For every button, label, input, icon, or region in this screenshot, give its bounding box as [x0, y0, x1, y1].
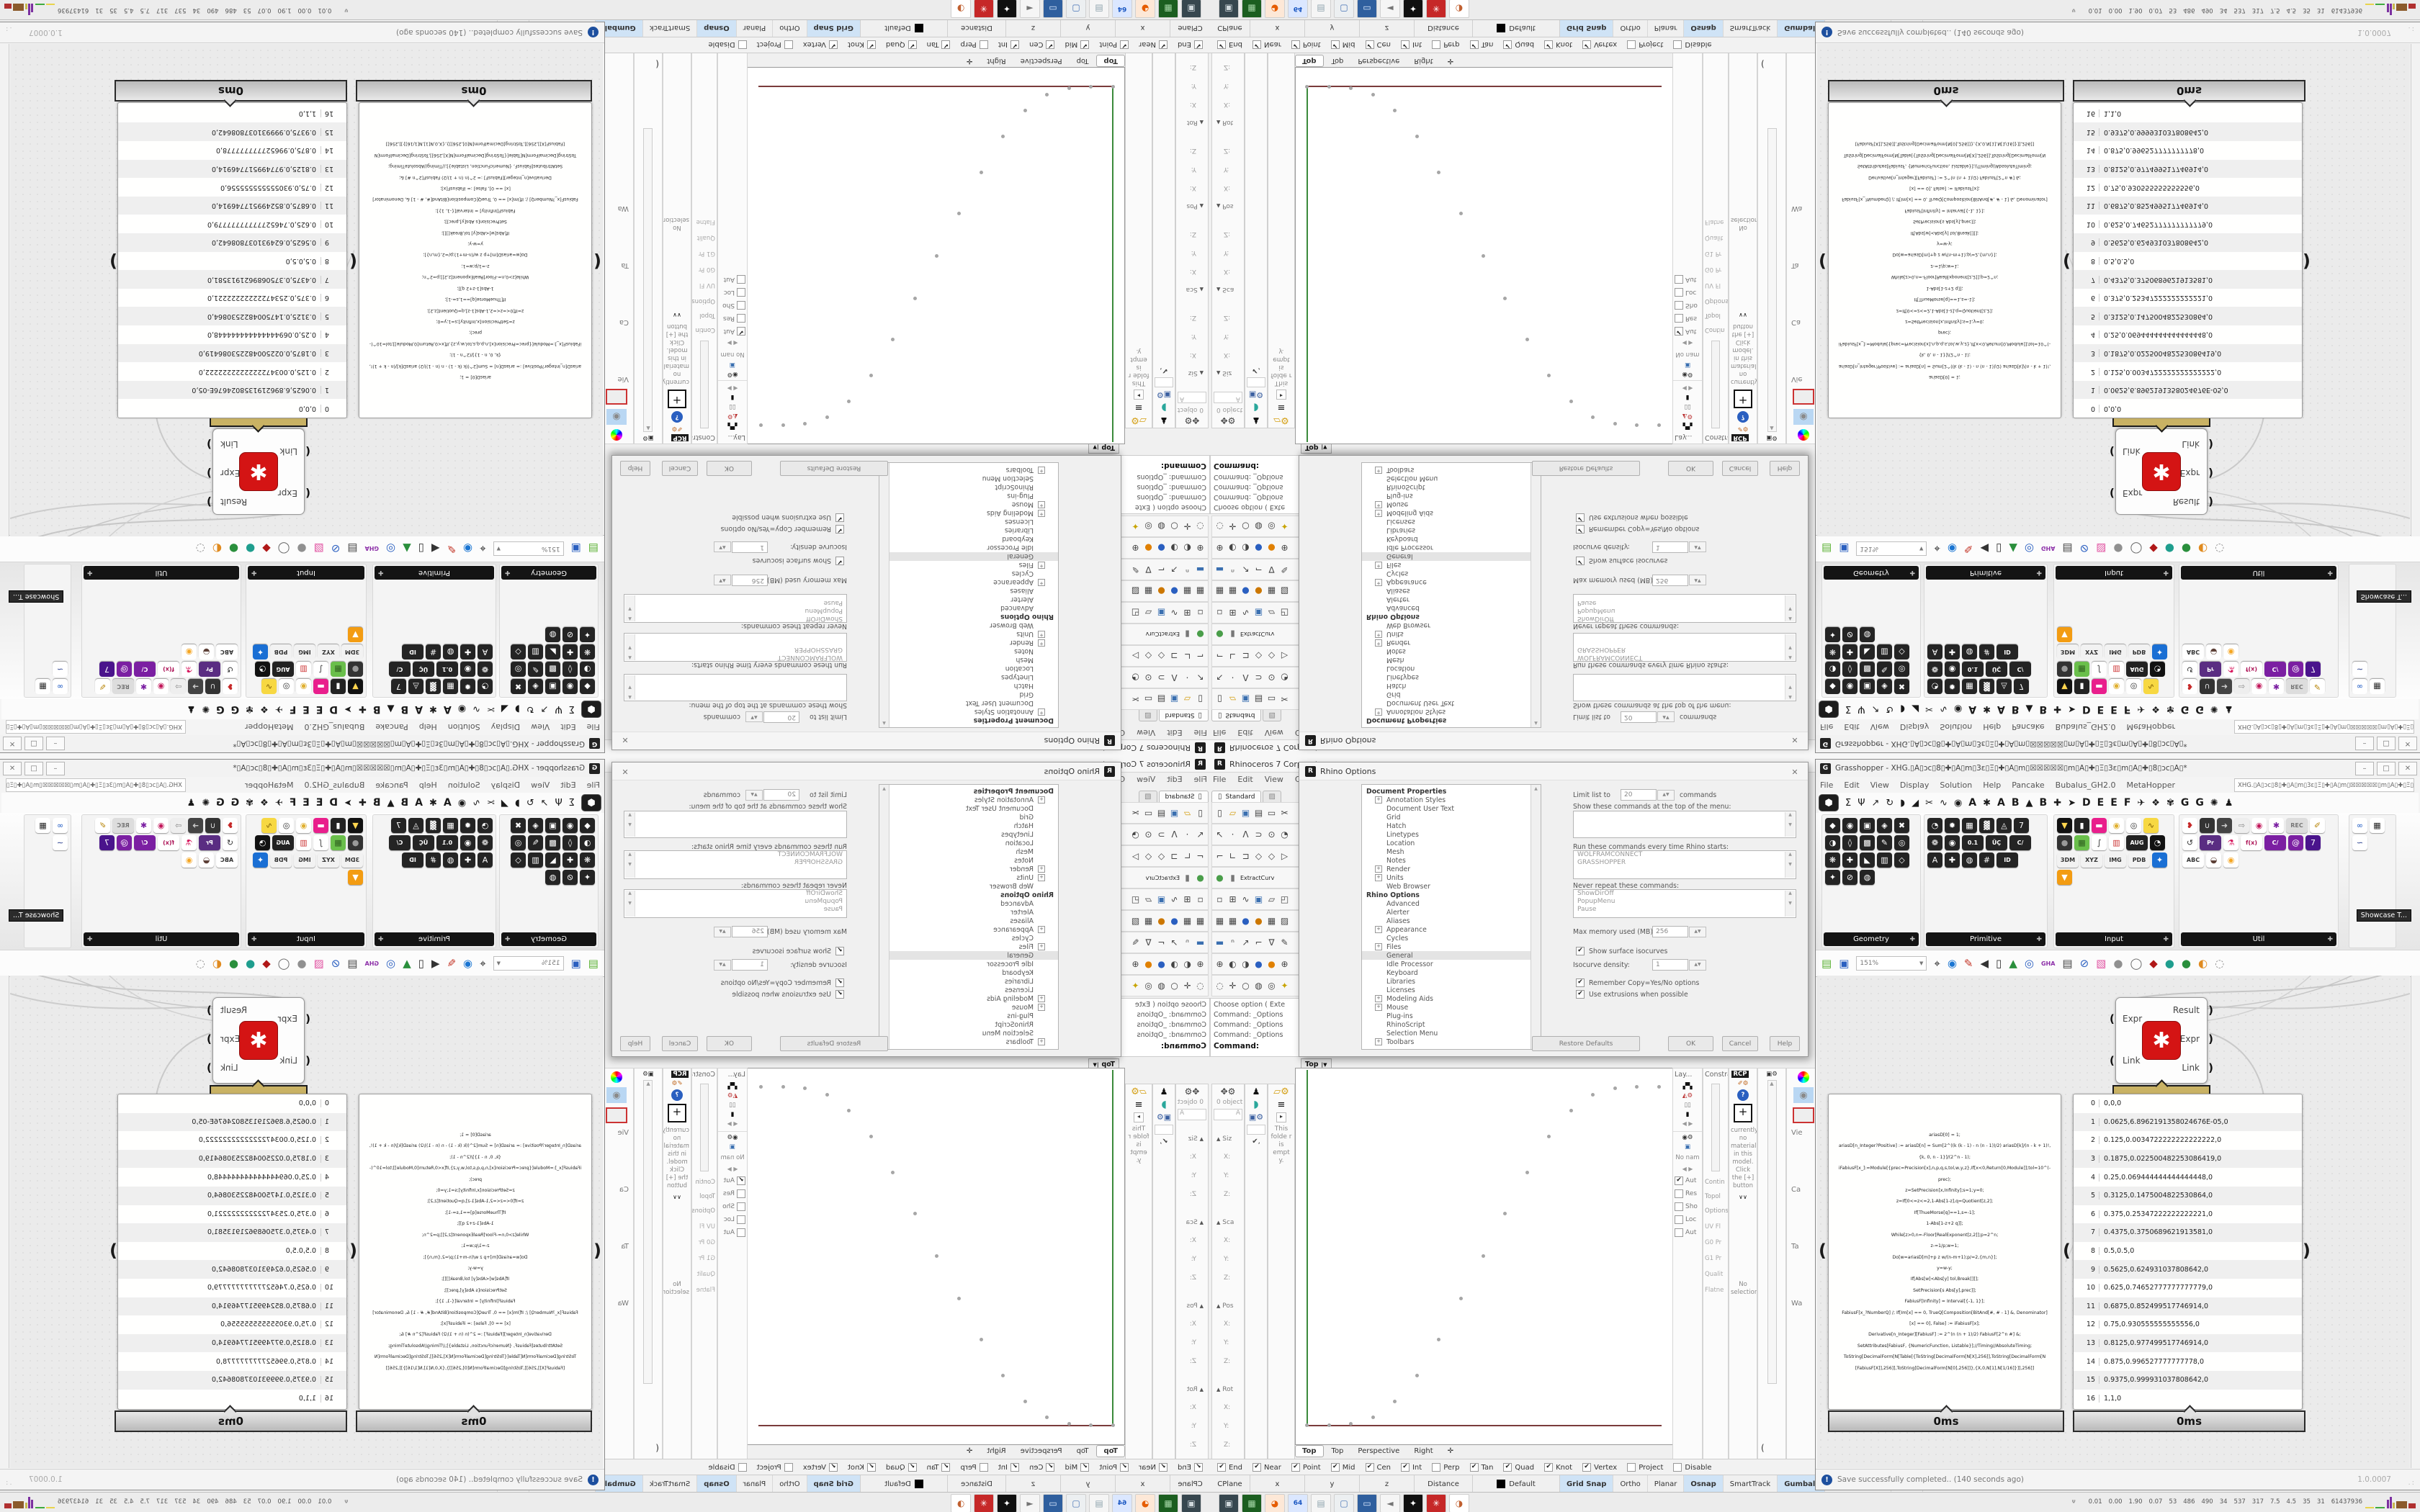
expand-icon[interactable]: ✚ — [2036, 570, 2042, 577]
osnap-checkbox[interactable] — [784, 40, 793, 49]
component-icon[interactable]: C/ — [2009, 662, 2031, 677]
tool-icon[interactable]: ✂ — [1130, 808, 1141, 818]
gh-category-tab[interactable]: F — [290, 797, 297, 809]
hamburger-icon[interactable]: ≡ — [1268, 1099, 1294, 1110]
viewport-tab-perspective[interactable]: Perspective — [1014, 1446, 1069, 1457]
osnap-end[interactable]: ✔End — [1178, 40, 1203, 49]
osnap-point[interactable]: ✔Point — [1291, 1463, 1321, 1472]
gh-menu-item-metahopper[interactable]: MetaHopper — [2126, 780, 2175, 790]
expand-icon[interactable]: ✚ — [505, 936, 511, 943]
gh-category-tab[interactable]: ✱ — [429, 798, 437, 809]
component-icon[interactable]: 0.1 — [436, 835, 458, 850]
chevrons-icon[interactable]: ∨∨ — [663, 1194, 691, 1200]
osnap-checkbox[interactable]: ✔ — [1080, 40, 1089, 49]
tool-icon[interactable]: ∇ — [1266, 937, 1277, 948]
osnap-checkbox[interactable]: ✔ — [942, 40, 951, 49]
rdock-check-aut[interactable]: ✔Aut — [720, 1176, 745, 1185]
data-panel[interactable]: 00,0,010.0625,6.8962191358024676E-05,020… — [2073, 102, 2303, 418]
tree-item-aliases[interactable]: Aliases — [879, 917, 1058, 925]
gh-menu-item-view[interactable]: View — [1870, 723, 1889, 732]
component-icon[interactable]: ◬ — [408, 679, 423, 694]
canvas-toolbar-icon[interactable]: ● — [2165, 542, 2174, 555]
statusbar-cell[interactable]: CPlane — [1210, 19, 1250, 37]
component-icon[interactable]: ❋ — [580, 644, 595, 660]
new-file-icon[interactable]: ▤ — [1821, 957, 1832, 970]
tab-stub[interactable]: ▨ — [1263, 710, 1281, 721]
component-icon[interactable]: ▣ — [545, 679, 560, 694]
tree-item-location[interactable]: Location — [879, 665, 1058, 673]
taskbar-icon[interactable]: ▭ — [1357, 1494, 1377, 1512]
osnap-perp[interactable]: Perp — [961, 40, 988, 49]
osnap-checkbox[interactable]: ✔ — [1366, 1463, 1374, 1472]
taskbar-icon[interactable]: ▦ — [1242, 0, 1262, 18]
taskbar-icon[interactable]: ▦ — [1158, 1494, 1178, 1512]
a-field[interactable]: A — [1178, 392, 1206, 403]
chevrons-icon[interactable]: ∨∨ — [1729, 312, 1757, 318]
tree-item-plug-ins[interactable]: Plug-ins — [879, 1012, 1058, 1020]
component-icon[interactable]: ◣ — [1860, 852, 1875, 868]
tool-icon[interactable]: ExtractCurv — [1240, 631, 1274, 638]
component-icon[interactable]: ✖ — [1894, 679, 1909, 694]
component-icon[interactable]: C/ — [2009, 835, 2031, 850]
component-icon[interactable]: ↺ — [223, 662, 238, 677]
spinner[interactable]: ▲▼ — [1689, 575, 1706, 585]
component-icon[interactable]: ◍ — [443, 852, 458, 868]
expand-icon[interactable]: ✚ — [505, 570, 511, 577]
component-icon[interactable]: ▼ — [2057, 818, 2072, 833]
component-icon[interactable]: Pr — [2200, 835, 2221, 850]
gh-category-tab[interactable]: ✱ — [429, 704, 437, 715]
code-panel[interactable]: ariasD[0] = 1;ariasD[n_Integer?Positive]… — [1828, 1094, 2061, 1410]
osnap-cen[interactable]: ✔Cen — [1029, 40, 1054, 49]
tool-icon[interactable]: ▬ — [1195, 564, 1206, 575]
checker-icon[interactable]: ▞▚ — [1673, 422, 1702, 429]
camera-gear-icon[interactable]: ◉⚙ — [718, 371, 747, 378]
tool-icon[interactable]: ● — [1253, 916, 1264, 926]
tab-standard[interactable]: ▯Standard — [1159, 710, 1209, 721]
component-icon[interactable]: 3DM — [2057, 644, 2079, 660]
canvas-toolbar-icon[interactable]: ◌ — [2215, 957, 2224, 970]
tool-icon[interactable]: ⌐ — [1156, 564, 1167, 575]
gh-category-tab[interactable]: ➤ — [344, 798, 352, 809]
section-header[interactable]: ▲ Sca — [1212, 1214, 1244, 1231]
canvas-toolbar-icon[interactable]: ◆ — [262, 957, 271, 970]
taskbar-icon[interactable]: ◕ — [1265, 0, 1285, 18]
canvas-toolbar-icon[interactable]: ◯ — [2130, 957, 2142, 970]
component-icon[interactable]: ↺ — [2182, 662, 2197, 677]
checkbox[interactable] — [1675, 1215, 1683, 1224]
tree-item-libraries[interactable]: Libraries — [879, 977, 1058, 986]
tool-icon[interactable]: ⊕ — [1214, 959, 1225, 969]
component-icon[interactable]: ▼ — [2057, 679, 2072, 694]
remember-checkbox[interactable]: ✔Remember Copy=Yes/No options — [1576, 978, 1699, 987]
canvas-toolbar-icon[interactable]: ◀ — [1981, 957, 1989, 970]
tool-icon[interactable]: ◍ — [1253, 521, 1264, 531]
statusbar-cell[interactable]: x — [1250, 19, 1305, 37]
tool-icon[interactable]: ▮ — [1182, 873, 1193, 883]
expand-arrow[interactable]: ▸ — [1134, 390, 1144, 400]
checkbox[interactable]: ✔ — [1675, 1176, 1683, 1185]
component-icon[interactable]: ✚ — [1945, 852, 1960, 868]
scrollbar[interactable]: ▲ — [644, 1080, 653, 1384]
viewport-tab-top[interactable]: Top — [1325, 56, 1350, 67]
gh-category-tab[interactable]: ✾ — [246, 798, 254, 809]
tree-item-plug-ins[interactable]: Plug-ins — [879, 492, 1058, 500]
statusbar-cell[interactable]: x — [1115, 19, 1170, 37]
taskbar-icon[interactable]: ✦ — [1403, 0, 1423, 18]
tree-expand-icon[interactable]: + — [1375, 1038, 1382, 1045]
tool-icon[interactable]: ● — [1253, 586, 1264, 596]
tree-item-idle-processor[interactable]: Idle Processor — [879, 960, 1058, 968]
menu-item-file[interactable]: File — [1194, 775, 1207, 784]
canvas-toolbar-icon[interactable]: ▲ — [403, 957, 411, 970]
component-icon[interactable]: @ — [2288, 662, 2303, 677]
tree-expand-icon[interactable]: + — [1375, 562, 1382, 569]
tool-icon[interactable]: ▣ — [1253, 608, 1264, 618]
canvas-toolbar-icon[interactable]: ● — [297, 542, 307, 555]
gh-category-tab[interactable]: ➤ — [344, 704, 352, 715]
board-icon[interactable]: ▦ — [35, 818, 50, 833]
menu-item-edit[interactable]: Edit — [1237, 775, 1252, 784]
tree-item-cycles[interactable]: Cycles — [1362, 934, 1541, 942]
goggles2-icon[interactable]: ∽ — [53, 835, 68, 850]
statusbar-cell[interactable]: CPlane — [1170, 19, 1210, 37]
minimize-button[interactable]: – — [2355, 762, 2374, 775]
gh-category-tab[interactable]: B — [373, 703, 381, 715]
output-port-expr[interactable]: Expr — [220, 1034, 240, 1044]
section-header[interactable]: ▲ Siz — [1212, 364, 1244, 382]
extrusions-checkbox[interactable]: ✔Use extrusions when possible — [732, 990, 844, 999]
tool-icon[interactable]: ⌐ — [1253, 937, 1264, 948]
expand-icon[interactable]: ✚ — [251, 570, 257, 577]
section-header[interactable]: ▲ Sca — [1176, 281, 1208, 298]
rcp-chip[interactable]: RCP — [1731, 434, 1749, 441]
tree-item-units[interactable]: +Units — [879, 873, 1058, 882]
tree-expand-icon[interactable]: + — [1375, 796, 1382, 804]
gh-category-tab[interactable]: E — [302, 703, 310, 715]
component-icon[interactable]: IMG — [2105, 852, 2126, 868]
osnap-checkbox[interactable] — [1627, 1463, 1636, 1472]
component-icon[interactable]: ✦ — [2152, 644, 2167, 660]
viewport-tab-right[interactable]: Right — [1407, 1446, 1439, 1457]
tool-icon[interactable]: ▣ — [1253, 894, 1264, 904]
component-icon[interactable]: ▩ — [1860, 835, 1875, 850]
component-icon[interactable]: ◬ — [408, 818, 423, 833]
palette-banner-util[interactable]: Util✚ — [2181, 932, 2336, 946]
component-icon[interactable]: ▣ — [545, 818, 560, 833]
gh-category-tab[interactable]: Ψ — [1857, 798, 1865, 809]
osnap-checkbox[interactable]: ✔ — [1010, 40, 1019, 49]
tab-stub[interactable]: ▨ — [1139, 791, 1157, 802]
port-grip[interactable]: ( — [2110, 1012, 2115, 1025]
tree-item-annotation-styles[interactable]: +Annotation Styles — [879, 796, 1058, 804]
component-icon[interactable]: ▣ — [1860, 679, 1875, 694]
component-icon[interactable]: ◔ — [2150, 662, 2165, 677]
graduation-cap-icon[interactable]: ♟ — [1245, 1086, 1267, 1097]
statusbar-cell[interactable]: z — [1360, 1475, 1415, 1493]
gh-category-tab[interactable]: ▲ — [387, 798, 394, 809]
component-icon[interactable]: ● — [348, 835, 363, 850]
component-icon[interactable]: ⚗ — [181, 662, 197, 677]
component-icon[interactable]: ✖ — [511, 818, 526, 833]
component-icon[interactable]: ● — [2057, 662, 2072, 677]
component-icon[interactable]: ∫ — [2092, 662, 2107, 677]
docs-icon[interactable]: ▯▯ — [718, 403, 747, 410]
tool-icon[interactable]: ⊙ — [1143, 672, 1154, 683]
component-icon[interactable]: ◍ — [443, 644, 458, 660]
component-icon[interactable]: ✚ — [1842, 644, 1857, 660]
tool-icon[interactable]: ◇ — [1266, 851, 1277, 861]
spray-icon[interactable]: ✐⚙ — [1729, 425, 1757, 432]
menu-item-file[interactable]: File — [1194, 729, 1207, 738]
restore-defaults-button[interactable]: Restore Defaults — [1532, 1036, 1640, 1051]
component-icon[interactable]: AUG — [2126, 835, 2148, 850]
canvas-toolbar-icon[interactable]: ◀ — [431, 957, 440, 970]
component-icon[interactable]: ▓ — [426, 679, 441, 694]
osnap-checkbox[interactable]: ✔ — [1503, 40, 1512, 49]
component-icon[interactable]: ◊ — [1842, 662, 1857, 677]
gh-category-tab[interactable]: ♟ — [2225, 704, 2233, 715]
rdock-check-sho[interactable]: Sho — [1675, 1202, 1700, 1211]
tool-icon[interactable]: ↗ — [1169, 564, 1180, 575]
layers-header[interactable]: Lay... — [718, 1068, 747, 1081]
listbox-scroll[interactable]: ▲▼ — [625, 891, 635, 917]
canvas-toolbar-icon[interactable]: ◀ — [1981, 542, 1989, 555]
component-icon[interactable]: ✐ — [2310, 679, 2325, 694]
component-icon[interactable]: ∪ — [2200, 818, 2215, 833]
output-port-expr[interactable]: Expr — [220, 468, 240, 478]
component-icon[interactable]: ◎ — [279, 818, 294, 833]
port-bracket[interactable]: ( — [349, 1241, 357, 1261]
canvas-toolbar-icon[interactable]: ⊘ — [331, 957, 341, 970]
gh-canvas[interactable]: Expr(Link( Result)Expr)Link) ✱ 5ms ( ) a… — [1817, 44, 2410, 536]
component-icon[interactable]: ◎ — [1894, 835, 1909, 850]
tree-expand-icon[interactable]: + — [1375, 631, 1382, 638]
statusbar-cell[interactable]: y — [1060, 1475, 1115, 1493]
component-icon[interactable]: ◒ — [2206, 644, 2221, 660]
gh-menu-item-pancake[interactable]: Pancake — [2012, 723, 2044, 732]
taskbar-icon[interactable]: ◑ — [951, 0, 971, 18]
rcp-chip[interactable]: RCP — [1731, 1071, 1749, 1078]
component-icon[interactable]: ◉ — [296, 818, 311, 833]
canvas-toolbar-icon[interactable]: ● — [2113, 542, 2123, 555]
tree-expand-icon[interactable]: + — [1038, 510, 1045, 517]
tool-icon[interactable]: ∿ — [1240, 894, 1251, 904]
gh-category-tab[interactable]: G — [2181, 703, 2190, 715]
input-port-link[interactable]: Link — [2123, 446, 2141, 456]
taskbar-icon[interactable]: ▤ — [1089, 1494, 1109, 1512]
component-icon[interactable]: ▩ — [545, 662, 560, 677]
port-bracket[interactable]: ( — [1819, 251, 1827, 271]
gh-menu-item-solution[interactable]: Solution — [1940, 780, 1972, 790]
osnap-checkbox[interactable] — [738, 40, 747, 49]
graduation-cap-icon[interactable]: ♟ — [1245, 415, 1267, 426]
component-icon[interactable]: XYZ — [2081, 644, 2102, 660]
listbox-scroll[interactable]: ▲▼ — [625, 675, 635, 700]
taskbar-icon[interactable]: ▢ — [1334, 0, 1354, 18]
tool-icon[interactable]: ✦ — [1130, 521, 1141, 531]
component-icon[interactable]: ◑ — [580, 662, 595, 677]
component-icon[interactable]: ✖ — [1894, 818, 1909, 833]
tool-icon[interactable]: ▱ — [1182, 694, 1193, 704]
gh-menu-item-file[interactable]: File — [1820, 723, 1833, 732]
tree-item-grid[interactable]: Grid — [1362, 813, 1541, 822]
spinner[interactable]: ▲▼ — [1689, 541, 1706, 552]
component-icon[interactable]: ◔ — [2150, 835, 2165, 850]
tree-item-location[interactable]: Location — [1362, 839, 1541, 847]
checkbox[interactable] — [737, 1228, 745, 1237]
tool-icon[interactable]: ◇ — [1253, 851, 1264, 861]
canvas-toolbar-icon[interactable]: GHA — [365, 546, 379, 552]
viewport-top[interactable] — [1295, 1068, 1674, 1445]
component-icon[interactable]: ID — [402, 852, 423, 868]
tool-icon[interactable]: Λ — [1169, 672, 1180, 683]
component-icon[interactable]: ▦ — [443, 679, 458, 694]
cancel-button[interactable]: Cancel — [1722, 461, 1758, 476]
component-icon[interactable]: ◍ — [1962, 644, 1977, 660]
canvas-toolbar-icon[interactable]: ◌ — [2215, 542, 2224, 555]
statusbar-toggle-osnap[interactable]: Osnap — [1684, 19, 1723, 37]
tool-icon[interactable]: ▦ — [1195, 916, 1206, 926]
osnap-quad[interactable]: ✔Quad — [1503, 1463, 1534, 1472]
component-icon[interactable]: ❋ — [1825, 644, 1840, 660]
tool-icon[interactable]: ▦ — [1182, 916, 1193, 926]
component-icon[interactable]: ◣ — [545, 644, 560, 660]
component-icon[interactable]: ⊘ — [1842, 870, 1857, 885]
tree-expand-icon[interactable]: + — [1038, 708, 1045, 716]
taskbar-icon[interactable]: ◕ — [1135, 1494, 1155, 1512]
tree-expand-icon[interactable]: + — [1375, 943, 1382, 950]
tool-icon[interactable]: ▬ — [1195, 937, 1206, 948]
component-icon[interactable]: ▥ — [528, 644, 543, 660]
canvas-toolbar-icon[interactable]: ▲ — [2009, 542, 2017, 555]
component-icon[interactable]: ✦ — [253, 852, 268, 868]
menu-item-file[interactable]: File — [1213, 775, 1226, 784]
gh-category-tab[interactable]: B — [373, 797, 381, 809]
gh-menu-item-edit[interactable]: Edit — [560, 780, 575, 790]
board-icon[interactable]: ▦ — [2370, 679, 2385, 694]
gh-category-tab[interactable]: ♟ — [187, 798, 196, 809]
osnap-checkbox[interactable]: ✔ — [1470, 40, 1479, 49]
tool-icon[interactable]: ◎ — [1266, 981, 1277, 991]
gh-category-tab[interactable]: ⬢ — [581, 701, 601, 718]
gh-category-tab[interactable]: B — [2040, 703, 2048, 715]
component-icon[interactable]: # — [1979, 644, 1994, 660]
gh-category-tab[interactable]: A — [444, 703, 452, 715]
gh-menu-item-bubalus_gh20[interactable]: Bubalus_GH2.0 — [2056, 780, 2116, 790]
component-icon[interactable]: ✚ — [460, 852, 475, 868]
tree-item-document-properties[interactable]: Document Properties — [1362, 787, 1541, 796]
tool-icon[interactable]: ▦ — [1195, 586, 1206, 596]
component-icon[interactable]: ID — [1996, 852, 2018, 868]
component-icon[interactable]: Pr — [2200, 662, 2221, 677]
gh-category-tab[interactable]: ✈ — [2137, 798, 2145, 809]
zoom-combo[interactable]: 151%▼ — [493, 956, 564, 971]
osnap-checkbox[interactable]: ✔ — [1194, 40, 1203, 49]
maximize-button[interactable]: □ — [24, 762, 43, 775]
viewport-tab-top[interactable]: Top — [1325, 1446, 1350, 1457]
tool-icon[interactable]: ○ — [1169, 521, 1180, 531]
component-icon[interactable]: ◒ — [199, 644, 214, 660]
tree-item-web-browser[interactable]: Web Browser — [1362, 621, 1541, 630]
port-grip[interactable]: ( — [2110, 487, 2115, 500]
component-icon[interactable]: ◉ — [2223, 852, 2238, 868]
tool-icon[interactable]: ⊃ — [1156, 829, 1167, 840]
gh-category-tab[interactable]: A — [415, 797, 423, 809]
gh-category-tab[interactable]: ∿ — [1940, 798, 1948, 809]
tool-icon[interactable]: ● — [1214, 873, 1225, 883]
tree-scrollbar[interactable]: ▲▼ — [1531, 463, 1541, 727]
taskbar-icon[interactable]: ▦ — [1158, 0, 1178, 18]
tool-icon[interactable]: ▱ — [1143, 894, 1154, 904]
viewport-tab-perspective[interactable]: Perspective — [1014, 56, 1069, 67]
tool-icon[interactable]: ↖ — [1214, 829, 1225, 840]
component-icon[interactable]: ◉ — [1945, 662, 1960, 677]
add-material-button[interactable]: + — [668, 390, 686, 408]
gh-category-tab[interactable]: ↻ — [526, 704, 534, 715]
input-port-expr[interactable]: Expr — [278, 1014, 297, 1024]
new-file-icon[interactable]: ▤ — [588, 542, 599, 555]
palette-banner-primitive[interactable]: Primitive✚ — [1926, 932, 2045, 946]
tree-item-rhino-options[interactable]: Rhino Options — [1362, 891, 1541, 899]
tool-icon[interactable]: ▨ — [1130, 586, 1141, 596]
expand-icon[interactable]: ✚ — [1909, 936, 1915, 943]
gh-category-tab[interactable]: E — [302, 797, 310, 809]
canvas-toolbar-icon[interactable]: ● — [246, 957, 255, 970]
gumball-icon[interactable]: ✥⚙ — [1212, 1086, 1244, 1097]
component-icon[interactable]: ▬ — [313, 818, 328, 833]
component-icon[interactable]: ◎ — [511, 835, 526, 850]
expand-icon[interactable]: ✚ — [2327, 936, 2333, 943]
graduation-cap-icon[interactable]: ♟ — [1153, 415, 1175, 426]
gh-category-tab[interactable]: Ψ — [555, 704, 563, 715]
osnap-checkbox[interactable]: ✔ — [1503, 1463, 1512, 1472]
tool-icon[interactable]: ExtractCurv — [1146, 875, 1180, 881]
memory-field[interactable]: 256▲▼ — [732, 575, 768, 586]
input-port-expr[interactable]: Expr — [2123, 488, 2142, 498]
osnap-disable[interactable]: Disable — [708, 40, 746, 49]
goggles-icon[interactable]: ∞ — [2352, 679, 2367, 694]
component-icon[interactable]: C/ — [389, 835, 411, 850]
run-commands-listbox[interactable]: WOLFRAMCONNECTGRASSHOPPER▲▼ — [1573, 633, 1796, 662]
tree-item-render[interactable]: +Render — [879, 865, 1058, 873]
component-icon[interactable]: ◔ — [478, 679, 493, 694]
tool-icon[interactable]: ▦ — [1182, 586, 1193, 596]
gh-category-tab[interactable]: G — [216, 797, 225, 809]
gh-menu-item-metahopper[interactable]: MetaHopper — [245, 780, 294, 790]
tree-item-cycles[interactable]: Cycles — [1362, 570, 1541, 578]
folder-icon[interactable]: ▱⚙ — [1126, 415, 1152, 426]
component-icon[interactable]: ◔ — [1927, 679, 1942, 694]
tool-icon[interactable]: ◔ — [1279, 829, 1290, 840]
tool-icon[interactable]: ↗ — [1169, 937, 1180, 948]
tree-item-modeling-aids[interactable]: +Modeling Aids — [1362, 994, 1541, 1003]
port-grip[interactable]: ) — [2208, 1004, 2213, 1017]
empty-field[interactable] — [1155, 377, 1173, 387]
gh-titlebar[interactable]: G Grasshopper - XHG.▯A▯ɔc▯8▯✚▯A▯m▯3ɛ▯Ξ▯✚… — [0, 760, 604, 777]
checkbox-icon[interactable]: ✔, — [1153, 1138, 1175, 1146]
canvas-toolbar-icon[interactable]: ● — [2165, 957, 2174, 970]
statusbar-cell[interactable]: x — [1250, 1475, 1305, 1493]
component-icon[interactable]: ▥ — [2109, 662, 2124, 677]
density-field[interactable]: 1▲▼ — [1652, 959, 1688, 971]
tree-item-web-browser[interactable]: Web Browser — [879, 882, 1058, 891]
component-icon[interactable]: REC — [112, 818, 134, 833]
component-icon[interactable]: ▼ — [348, 870, 363, 885]
tree-expand-icon[interactable]: + — [1038, 1038, 1045, 1045]
monitor-gear-icon[interactable]: ▣⚙ — [1758, 1071, 1785, 1078]
gh-menu-item-edit[interactable]: Edit — [560, 723, 575, 732]
